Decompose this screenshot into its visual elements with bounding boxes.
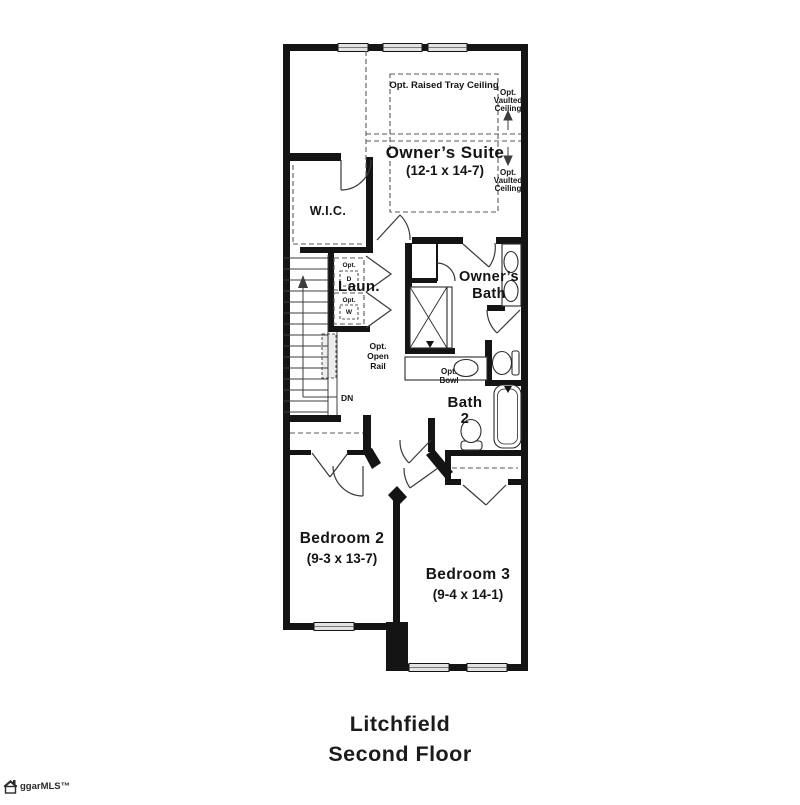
wall-bedroom-divider [393,493,400,627]
label-bedroom2: Bedroom 2 [300,530,385,547]
door-water-closet [487,310,520,333]
svg-text:Bath: Bath [472,286,506,302]
door-linen [437,263,455,281]
label-bath2: Bath [448,394,483,411]
label-dn: DN [341,393,353,403]
watermark-text: ggarMLS™ [20,781,70,792]
label-wic: W.I.C. [310,204,346,218]
label-bedroom2-dims: (9-3 x 13-7) [307,551,378,566]
wall-closet2-stub-left [290,450,311,455]
door-owners-suite [377,215,410,240]
toilet-water-closet [493,351,520,375]
wall-wic-bottom [300,247,373,253]
door-closet2-double [312,453,348,477]
label-bedroom3: Bedroom 3 [426,566,511,583]
svg-text:Rail: Rail [370,361,386,371]
svg-text:Ceiling: Ceiling [495,184,522,193]
label-tray-ceiling: Opt. Raised Tray Ceiling [389,80,498,91]
wall-left [283,44,290,630]
door-owners-bath [463,243,495,267]
watermark: ggarMLS™ [2,778,70,795]
door-bedroom3 [404,468,438,488]
label-opt-washer: Opt. [343,297,356,304]
floor-name: Second Floor [0,739,800,769]
wall-laundry-left [328,252,334,332]
wall-suite-south-b [496,237,523,244]
shower [410,287,452,348]
wall-wedge-divider [388,486,407,506]
floor-plan-drawing: Opt. Raised Tray Ceiling Opt. Vaulted Ce… [0,0,800,800]
wall-closet3-stub-left [445,479,461,485]
wall-wedge-bed2 [363,448,381,469]
svg-text:D: D [347,276,352,283]
door-closet3-double [463,485,506,505]
wall-linen-south [405,278,437,283]
label-opt-dryer: Opt. [343,262,356,269]
svg-text:2: 2 [461,410,470,427]
plan-title: Litchfield Second Floor [0,709,800,769]
svg-text:Ceiling: Ceiling [495,104,522,113]
sink-3 [454,360,478,377]
wall-suite-south-a [412,237,463,244]
label-owners-bath: Owner’s [459,269,519,285]
label-owners-suite-dims: (12-1 x 14-7) [406,163,484,178]
label-owners-suite: Owner’s Suite [386,143,505,162]
door-bath2 [400,440,431,463]
wall-closet2-stub-right [347,450,363,455]
door-bedroom2 [333,466,363,496]
wall-closet3-stub-right [508,479,528,485]
vault-arrow-down-head [504,156,512,165]
wall-stair-bottom [283,415,341,422]
label-opt-bowl: Opt. [441,367,457,376]
wall-laundry-bottom [328,326,370,332]
open-rail [322,334,336,378]
wall-wic-top [283,153,341,161]
wall-under-shower [405,348,455,354]
label-laundry: Laun. [338,278,380,295]
svg-text:Bowl: Bowl [439,376,458,385]
label-open-rail: Opt. [370,341,387,351]
wall-right [521,44,528,671]
watermark-house-icon [2,778,19,795]
bathtub [494,385,521,448]
vault-arrows [504,111,512,165]
stair-arrow-head [298,275,308,288]
svg-text:W: W [346,309,353,316]
plan-name: Litchfield [0,709,800,739]
wall-hall-east [428,418,435,452]
wall-closet3-top [445,450,528,456]
svg-text:Open: Open [367,351,389,361]
wall-step [386,622,408,671]
floor-plan-page: Opt. Raised Tray Ceiling Opt. Vaulted Ce… [0,0,800,800]
label-bedroom3-dims: (9-4 x 14-1) [433,587,504,602]
